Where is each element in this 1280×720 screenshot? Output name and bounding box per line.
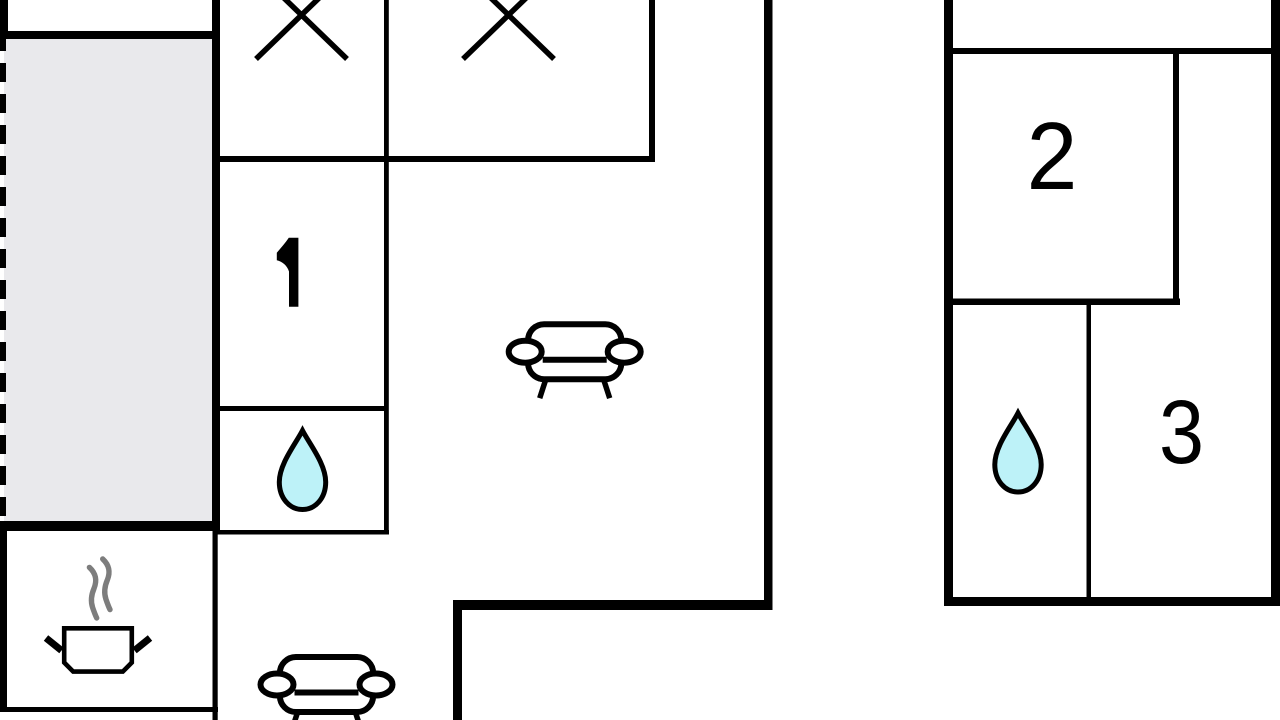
- svg-text:2: 2: [1027, 102, 1078, 210]
- svg-text:3: 3: [1159, 382, 1204, 483]
